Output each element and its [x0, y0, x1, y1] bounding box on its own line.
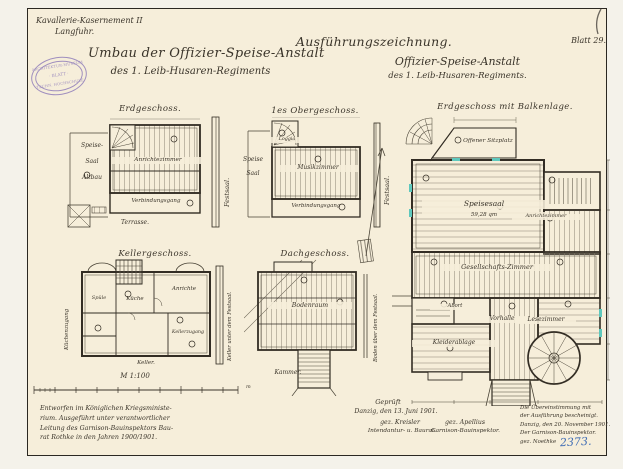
room-label-lesezimmer: Lesezimmer — [516, 317, 576, 324]
archive-number: 2373. — [560, 435, 611, 450]
room-label-kammer: Kammer. — [260, 370, 316, 377]
sheet-number: Blatt 29. — [560, 36, 606, 45]
wall-label-boden-festsaal: Boden über dem Festsaal. — [374, 294, 380, 362]
wall-label-festsaal: Festsaal. — [224, 178, 231, 207]
approval-checked: Geprüft — [348, 399, 428, 406]
room-label-abort: Abort — [430, 304, 480, 310]
room-label-anrichte: Anrichte — [160, 286, 208, 292]
office-name-line2: Langfuhr. — [55, 27, 135, 36]
room-label-speise: Speise — [238, 157, 268, 164]
room-label-musikzimmer: Musikzimmer — [278, 165, 358, 172]
certification-note-line1: Die Übereinstimmung mit — [520, 404, 612, 412]
room-label-saal: Saal — [74, 159, 110, 166]
designer-note-line3: Leitung des Garnison-Bauinspektors Bau- — [40, 424, 222, 434]
room-label-altbau: Altbau — [74, 175, 110, 182]
room-label-kleiderablage: Kleiderablage — [412, 340, 496, 347]
room-label-anrichtezimmer: Anrichtezimmer — [512, 214, 580, 220]
subject-title-line2: des 1. Leib-Husaren-Regiments. — [380, 72, 535, 82]
approval-place-date: Danzig, den 13. Juni 1901. — [336, 408, 456, 415]
room-label-verbindungsgang: Verbindungsgang — [274, 203, 358, 209]
subject-title-line1: Offizier-Speise-Anstalt — [380, 56, 535, 69]
room-label-kellerzugang: Kellerzugang — [162, 330, 214, 336]
certification-note-line2: der Ausführung bescheinigt. — [520, 412, 612, 420]
designer-note-line1: Entworfen im Königlichen Kriegsministe- — [40, 404, 222, 414]
room-label-verbindungsgang: Verbindungsgang — [112, 198, 200, 204]
room-label-gesellschaftszimmer: Gesellschafts-Zimmer — [440, 264, 554, 271]
room-label-spuele: Spüle — [84, 296, 114, 302]
wall-label-keller-festsaal: Keller unter dem Festsaal. — [228, 291, 234, 361]
plan-title-obergeschoss: 1es Obergeschoss. — [245, 106, 385, 116]
approval-signature-right: gez. Apellius — [425, 419, 505, 426]
floor-plan-drawing-balkenlage — [392, 114, 614, 406]
plan-erdgeschoss: Speise- Saal Altbau Anrichtezimmer Verbi… — [62, 115, 240, 237]
wall-label-kuechenzugang: Küchenzugang — [64, 309, 70, 350]
main-title-line2: des 1. Leib-Husaren-Regiments — [88, 66, 293, 78]
room-label-anrichtezimmer: Anrichtezimmer — [112, 157, 204, 164]
plan-kellergeschoss: Spüle Küche Anrichte Kellerzugang Keller… — [58, 258, 242, 382]
approval-title-right: Garnison-Bauinspektor. — [418, 428, 513, 435]
main-title-line1: Umbau der Offizier-Speise-Anstalt — [88, 47, 293, 62]
scale-bar — [32, 384, 248, 396]
scale-label: M 1:100 — [100, 372, 170, 380]
room-label-kueche: Küche — [118, 296, 152, 302]
room-label-terrasse: Terrasse. — [100, 220, 170, 227]
designer-note: Entworfen im Königlichen Kriegsministe- … — [40, 404, 222, 443]
plan-dachgeschoss: Bodenraum Kammer. Boden über dem Festsaa… — [244, 258, 396, 396]
pencil-stroke-mark — [588, 6, 604, 36]
room-label-speise: Speise- — [74, 143, 110, 150]
room-label-saal: Saal — [238, 171, 268, 178]
plan-title-erdgeschoss: Erdgeschoss. — [98, 104, 202, 114]
room-label-sitzplatz: Offener Sitzplatz — [448, 138, 528, 145]
drawing-type-title: Ausführungszeichnung. — [295, 35, 453, 49]
designer-note-line4: rat Rothke in den Jahren 1900/1901. — [40, 433, 222, 443]
certification-note-line3: Danzig, den 20. November 1901. — [520, 421, 612, 429]
designer-note-line2: rium. Ausgeführt unter verantwortlicher — [40, 414, 222, 424]
room-label-speisesaal: Speisesaal — [422, 200, 546, 209]
plan-balkenlage: Offener Sitzplatz Speisesaal 59,28 qm An… — [392, 104, 614, 408]
room-label-loggia: Loggia — [270, 137, 304, 143]
office-name-line1: Kavallerie-Kasernement II — [36, 16, 166, 25]
room-label-bodenraum: Bodenraum — [268, 302, 352, 309]
room-label-keller: Keller. — [122, 360, 170, 366]
